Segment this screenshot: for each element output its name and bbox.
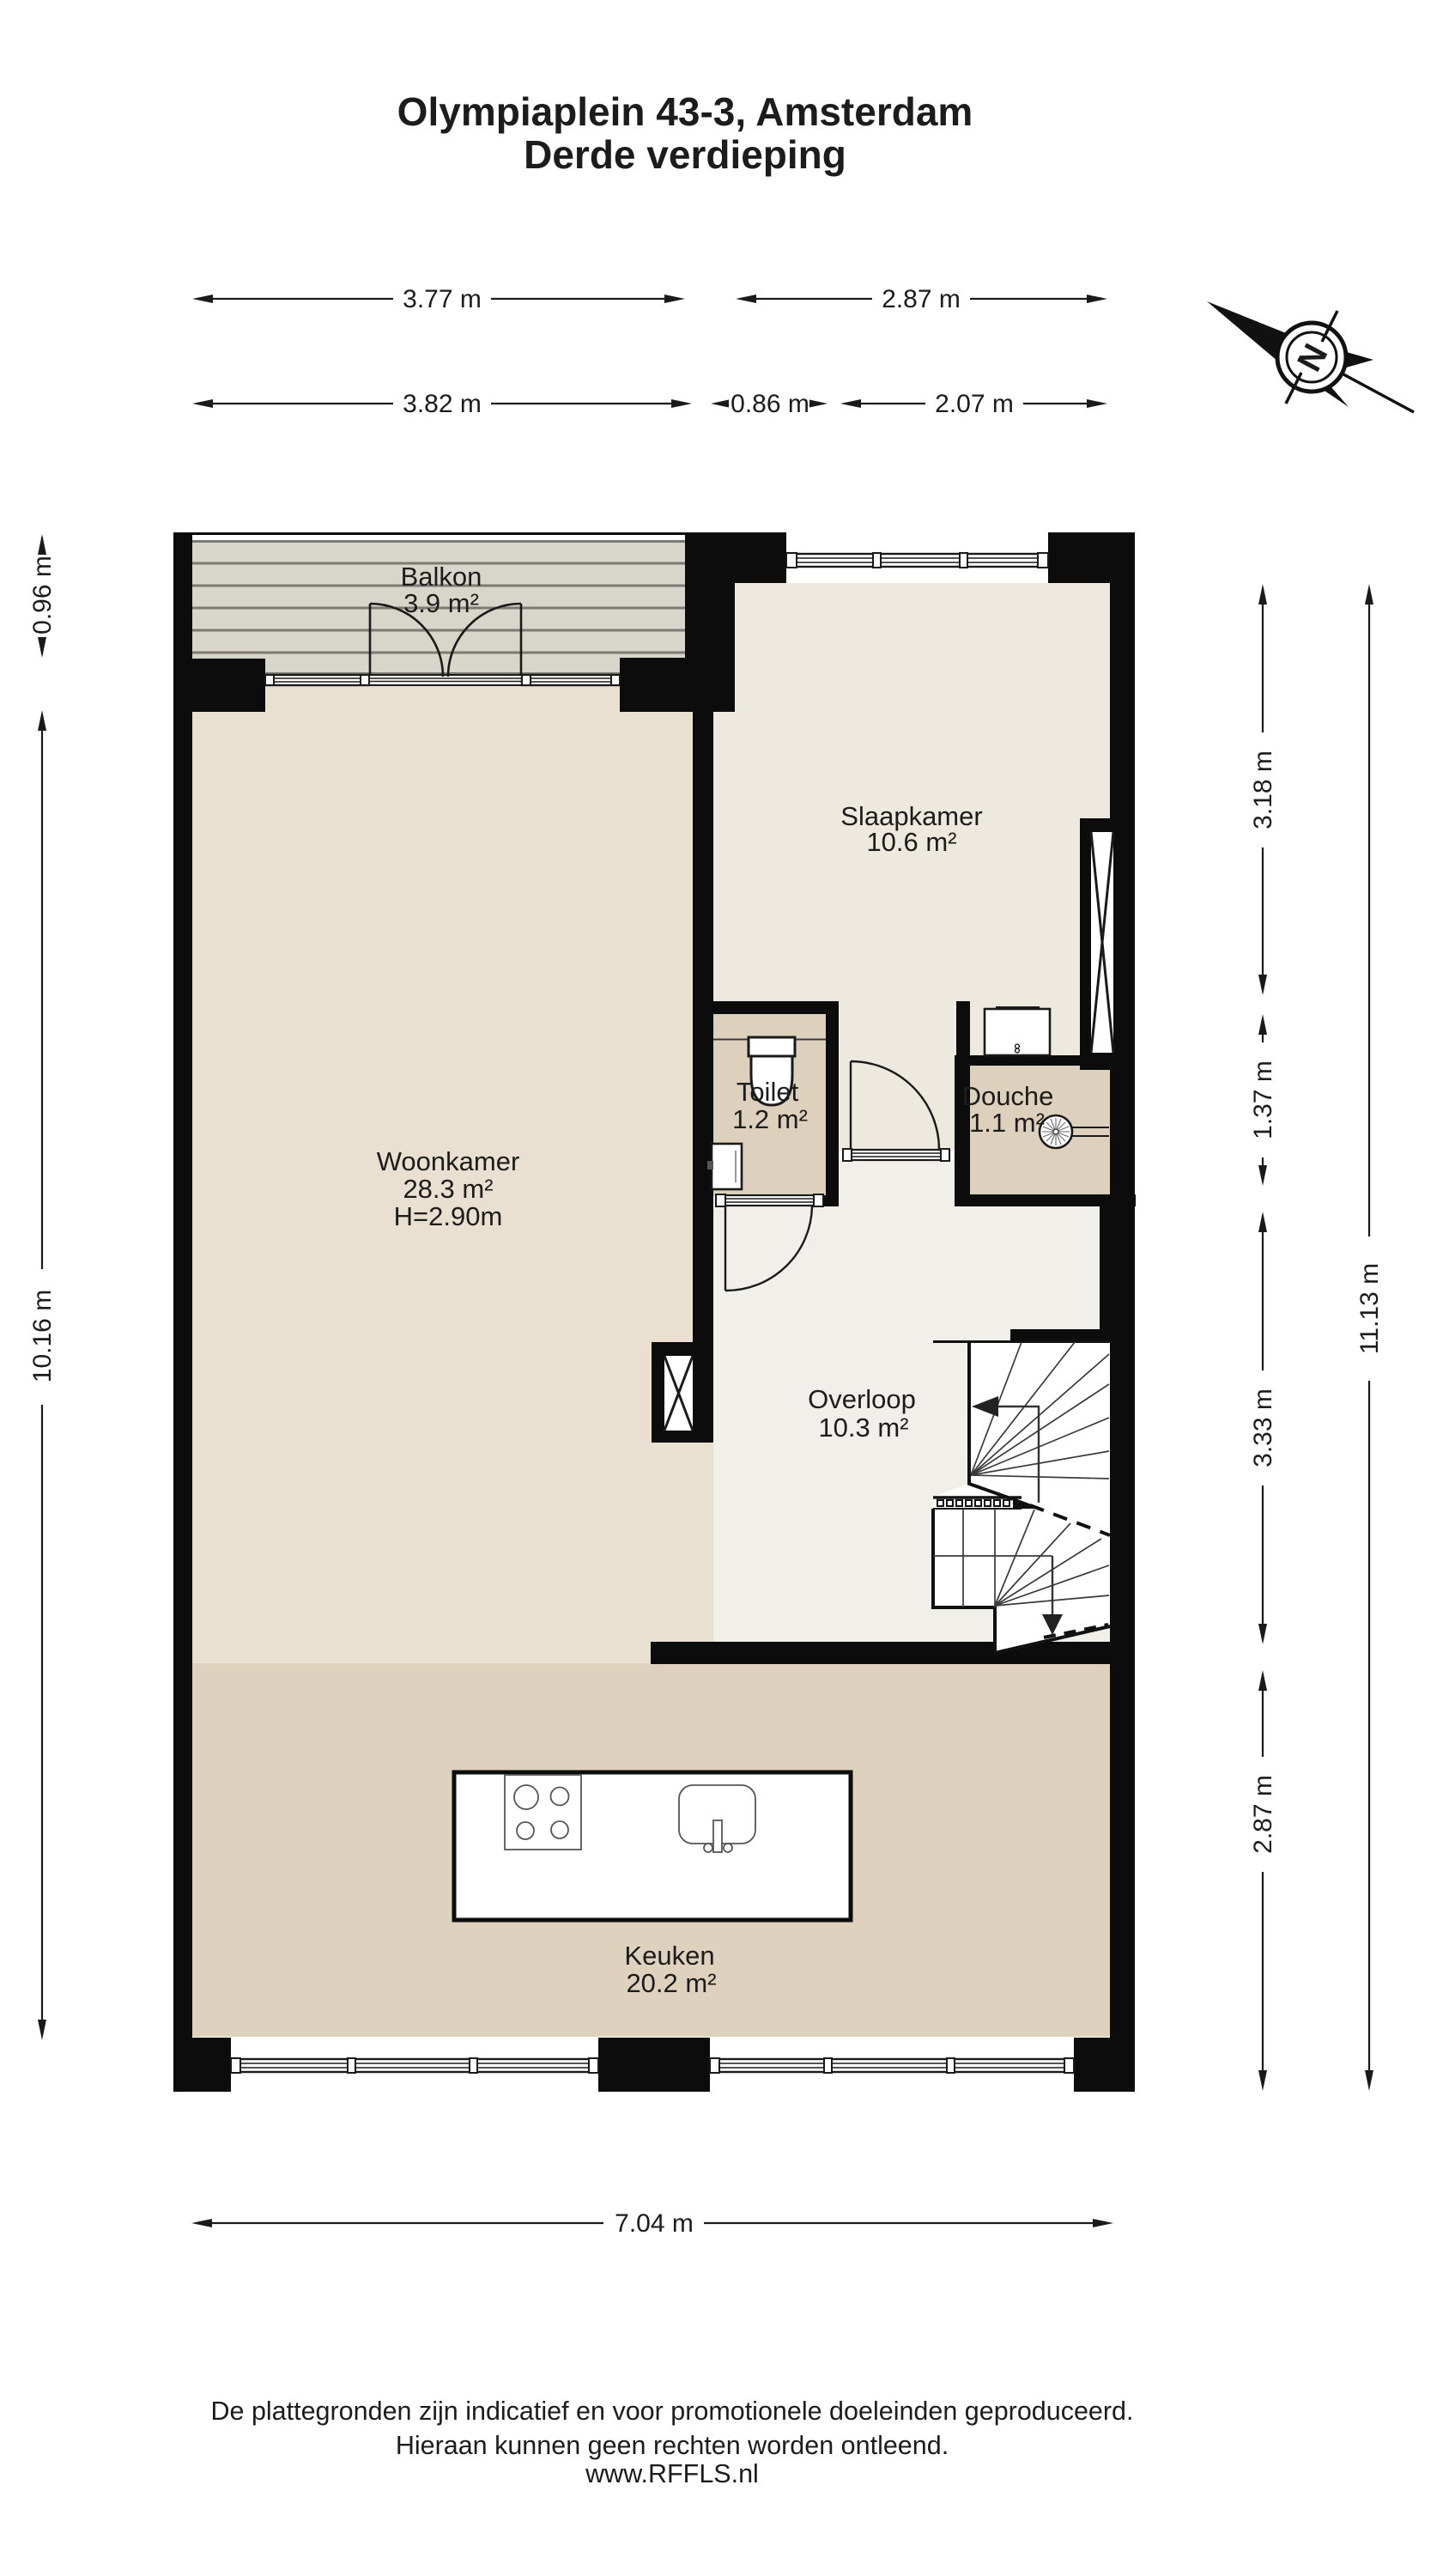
svg-text:3.33 m: 3.33 m	[1249, 1388, 1277, 1467]
svg-text:10.16 m: 10.16 m	[28, 1290, 57, 1382]
svg-text:28.3 m²: 28.3 m²	[403, 1174, 493, 1204]
svg-text:H=2.90m: H=2.90m	[394, 1201, 503, 1231]
svg-text:Derde verdieping: Derde verdieping	[524, 132, 846, 177]
svg-text:2.87 m: 2.87 m	[1249, 1775, 1277, 1854]
svg-text:3.18 m: 3.18 m	[1249, 750, 1277, 829]
svg-text:De plattegronden zijn indicati: De plattegronden zijn indicatief en voor…	[210, 2397, 1133, 2426]
svg-text:3.9 m²: 3.9 m²	[403, 588, 479, 618]
svg-text:2.07 m: 2.07 m	[935, 390, 1014, 418]
svg-text:Woonkamer: Woonkamer	[377, 1146, 520, 1176]
svg-text:2.87 m: 2.87 m	[882, 285, 961, 313]
svg-text:Douche: Douche	[962, 1081, 1054, 1111]
svg-text:20.2 m²: 20.2 m²	[626, 1968, 716, 1998]
svg-text:1.37 m: 1.37 m	[1249, 1060, 1277, 1139]
svg-text:Toilet: Toilet	[737, 1077, 799, 1107]
svg-text:Keuken: Keuken	[624, 1941, 714, 1971]
svg-text:1.1 m²: 1.1 m²	[969, 1108, 1045, 1138]
svg-text:3.82 m: 3.82 m	[403, 390, 482, 418]
svg-text:Balkon: Balkon	[401, 562, 482, 592]
svg-text:1.2 m²: 1.2 m²	[732, 1104, 808, 1134]
svg-text:3.77 m: 3.77 m	[403, 285, 482, 313]
svg-text:0.86 m: 0.86 m	[731, 390, 809, 418]
svg-text:Olympiaplein 43-3, Amsterdam: Olympiaplein 43-3, Amsterdam	[397, 89, 973, 134]
svg-text:7.04 m: 7.04 m	[615, 2209, 694, 2238]
svg-text:11.13 m: 11.13 m	[1355, 1263, 1384, 1354]
svg-text:10.6 m²: 10.6 m²	[866, 827, 956, 857]
svg-text:10.3 m²: 10.3 m²	[818, 1413, 908, 1443]
svg-text:Overloop: Overloop	[808, 1384, 916, 1414]
svg-text:0.96 m: 0.96 m	[28, 556, 57, 635]
svg-text:Hieraan kunnen geen rechten wo: Hieraan kunnen geen rechten worden ontle…	[396, 2431, 949, 2460]
svg-text:www.RFFLS.nl: www.RFFLS.nl	[585, 2459, 759, 2488]
